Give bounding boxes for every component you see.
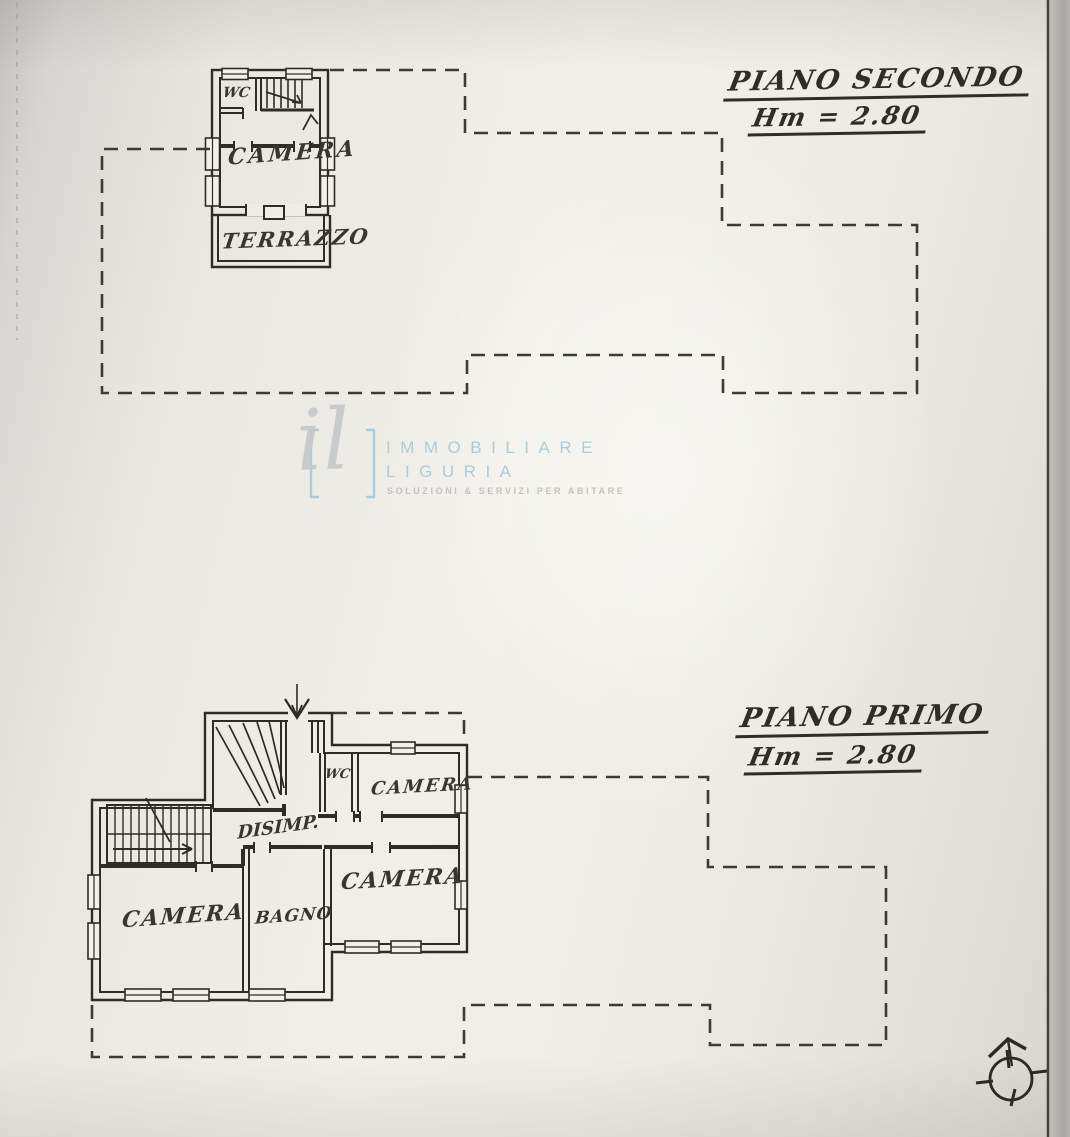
watermark-tagline: SOLUZIONI & SERVIZI PER ABITARE: [387, 486, 625, 496]
north-compass-icon: [976, 1039, 1047, 1106]
floor2-title: PIANO SECONDO: [723, 61, 1035, 101]
floor1-title: PIANO PRIMO: [735, 699, 995, 738]
floor1-room-label-wc: WC: [324, 767, 352, 782]
floor1-height-label: Hm = 2.80: [743, 739, 927, 775]
floorplan-linework: [0, 0, 1070, 1137]
entrance-arrow-icon: [285, 684, 309, 718]
floor2-height-label: Hm = 2.80: [747, 100, 931, 136]
floor2-stairs-icon: [261, 79, 314, 110]
watermark-monogram: il: [295, 397, 352, 483]
floor2-room-label-terrazzo: TERRAZZO: [220, 223, 371, 253]
scanned-floorplan-page: PIANO SECONDO Hm = 2.80 WC CAMERA TERRAZ…: [0, 0, 1070, 1137]
floor1-stairs-upper-icon: [216, 721, 284, 806]
floor1-plan: [88, 684, 467, 1001]
floor2-room-label-wc: WC: [222, 85, 252, 101]
watermark-name-line2: LIGURIA: [386, 462, 521, 482]
watermark-name-line1: IMMOBILIARE: [386, 438, 602, 458]
